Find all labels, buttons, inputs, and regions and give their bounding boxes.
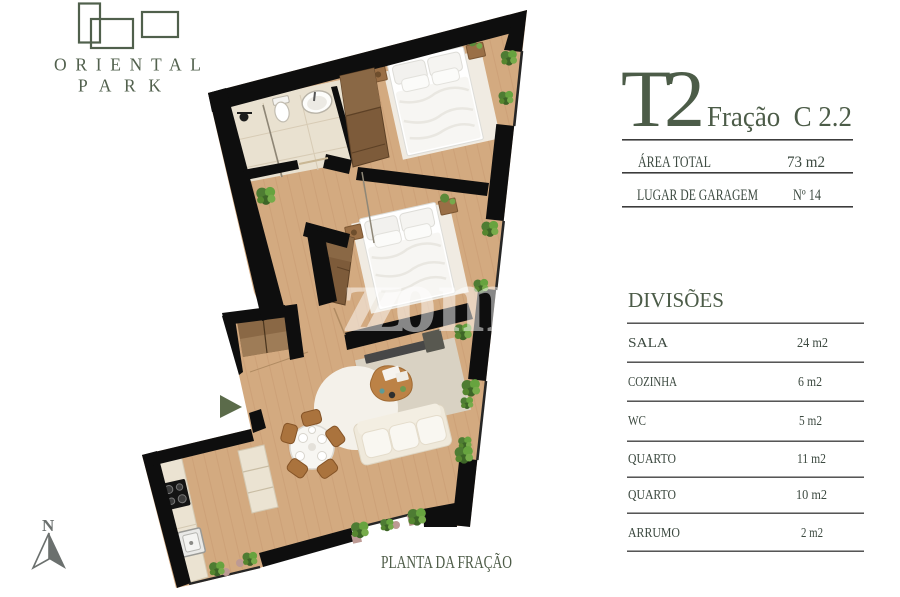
svg-text:N: N xyxy=(42,516,55,535)
svg-text:T2: T2 xyxy=(621,53,705,144)
svg-text:ome: ome xyxy=(394,248,547,352)
svg-text:®: ® xyxy=(548,257,560,274)
svg-text:11 m2: 11 m2 xyxy=(797,451,826,466)
svg-text:COZINHA: COZINHA xyxy=(628,374,677,389)
svg-text:73 m2: 73 m2 xyxy=(787,154,825,171)
svg-text:10 m2: 10 m2 xyxy=(796,487,827,502)
svg-text:5 m2: 5 m2 xyxy=(799,413,822,428)
svg-text:Nº 14: Nº 14 xyxy=(793,187,821,204)
svg-text:QUARTO: QUARTO xyxy=(628,487,676,502)
svg-text:Fração C 2.2: Fração C 2.2 xyxy=(707,101,852,133)
svg-text:QUARTO: QUARTO xyxy=(628,451,676,466)
svg-text:DIVISÕES: DIVISÕES xyxy=(628,288,724,312)
svg-text:PLANTA DA FRAÇÃO: PLANTA DA FRAÇÃO xyxy=(381,552,512,572)
svg-text:ARRUMO: ARRUMO xyxy=(628,525,680,540)
svg-text:WC: WC xyxy=(628,413,646,428)
svg-text:SALA: SALA xyxy=(628,335,668,350)
svg-text:24 m2: 24 m2 xyxy=(797,335,828,350)
svg-text:ÁREA TOTAL: ÁREA TOTAL xyxy=(638,154,711,171)
svg-text:LUGAR DE GARAGEM: LUGAR DE GARAGEM xyxy=(637,187,758,204)
svg-text:2 m2: 2 m2 xyxy=(801,525,823,540)
svg-text:6 m2: 6 m2 xyxy=(798,374,822,389)
